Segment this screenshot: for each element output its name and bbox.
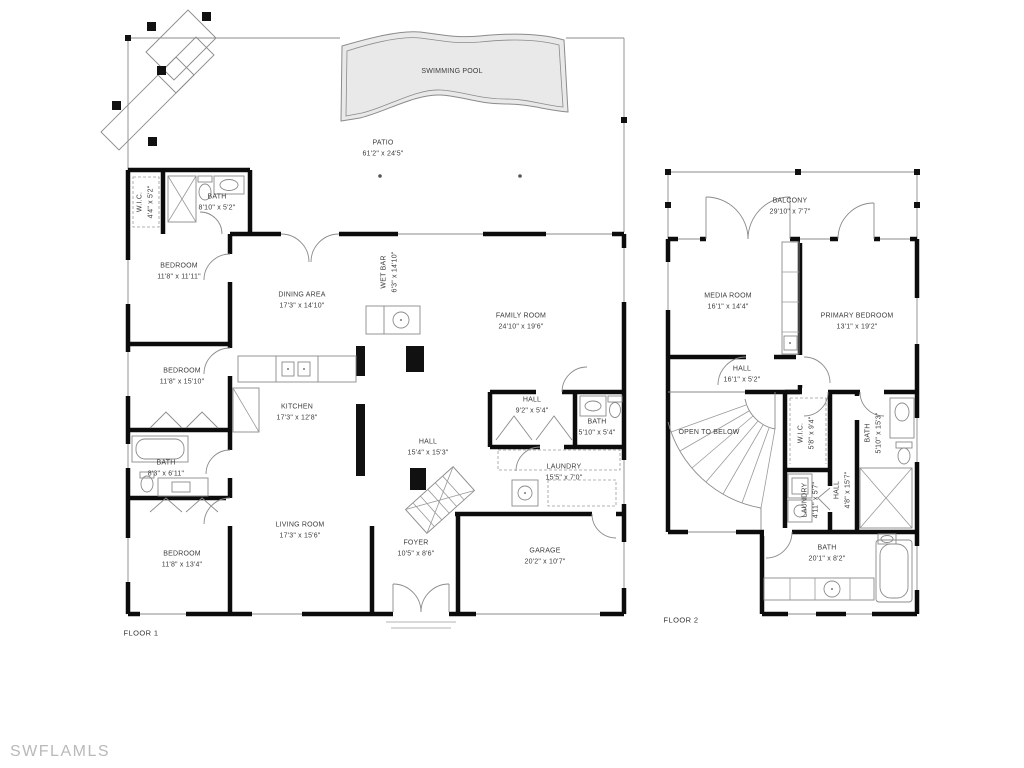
room-label-wic-f1: W.I.C.4'4" x 5'2" [136, 186, 157, 219]
room-label-open-to-below: OPEN TO BELOW [678, 428, 739, 439]
room-label-kitchen: KITCHEN17'3" x 12'8" [277, 403, 318, 424]
room-label-hall-f2-b: HALL4'8" x 15'7" [833, 472, 854, 509]
room-label-patio: PATIO61'2" x 24'5" [363, 139, 404, 160]
room-label-hall-f1-a: HALL9'2" x 5'4" [516, 396, 549, 417]
room-label-bath-f2-b: BATH20'1" x 8'2" [809, 544, 846, 565]
room-label-hall-f2-a: HALL16'1" x 5'2" [724, 365, 761, 386]
floorplan-drawing [0, 0, 1024, 768]
room-label-foyer: FOYER10'5" x 8'6" [398, 539, 435, 560]
room-label-laundry-f2: LAUNDRY4'11" x 5'7" [801, 482, 822, 518]
room-label-bath-f1-b: BATH5'10" x 5'4" [579, 418, 616, 439]
room-label-bath-f2-a: BATH5'10" x 15'3" [864, 413, 885, 454]
room-label-laundry-f1: LAUNDRY15'5" x 7'0" [546, 463, 583, 484]
room-label-wic-f2: W.I.C.5'8" x 9'4" [797, 417, 818, 450]
room-label-hall-f1-b: HALL15'4" x 15'3" [408, 438, 449, 459]
room-label-bedroom-a: BEDROOM11'8" x 11'11" [157, 262, 201, 283]
room-label-bath-f1-c: BATH8'3" x 6'11" [148, 459, 184, 480]
floorplan-page: SWIMMING POOL PATIO61'2" x 24'5" W.I.C.4… [0, 0, 1024, 768]
floor1-caption: FLOOR 1 [124, 629, 159, 638]
room-label-media-room: MEDIA ROOM16'1" x 14'4" [704, 292, 752, 313]
watermark: SWFLAMLS [10, 743, 110, 761]
room-label-balcony: BALCONY29'10" x 7'7" [770, 197, 811, 218]
room-label-living-room: LIVING ROOM17'3" x 15'6" [276, 521, 325, 542]
room-label-bedroom-b: BEDROOM11'8" x 15'10" [160, 367, 205, 388]
room-label-swimming-pool: SWIMMING POOL [421, 67, 482, 78]
room-label-family-room: FAMILY ROOM24'10" x 19'6" [496, 312, 546, 333]
room-label-garage: GARAGE20'2" x 10'7" [525, 547, 566, 568]
room-label-bath-f1-a: BATH8'10" x 5'2" [199, 193, 236, 214]
room-label-dining-area: DINING AREA17'3" x 14'10" [278, 291, 325, 312]
dock-walkway [101, 10, 216, 150]
room-label-primary-bedroom: PRIMARY BEDROOM13'1" x 19'2" [821, 312, 894, 333]
room-label-bedroom-c: BEDROOM11'8" x 13'4" [162, 550, 202, 571]
room-label-wet-bar: WET BAR6'3" x 14'10" [380, 252, 401, 293]
floor2-caption: FLOOR 2 [664, 616, 699, 625]
